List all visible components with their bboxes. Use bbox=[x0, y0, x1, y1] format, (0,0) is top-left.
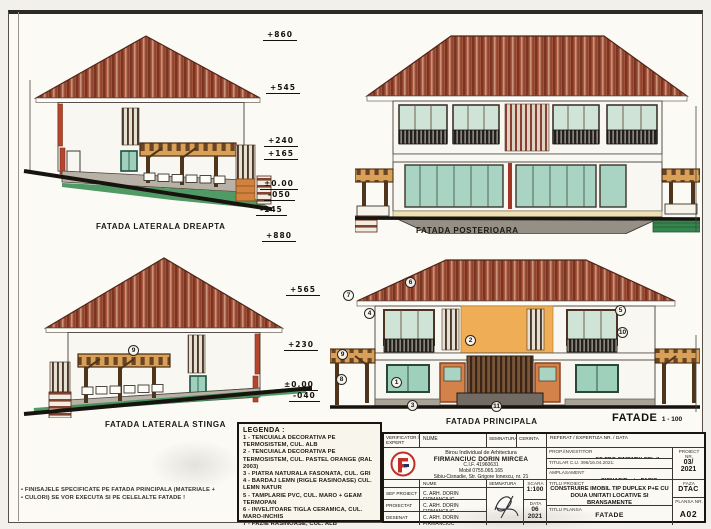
sheet-title-text: FATADE bbox=[612, 412, 657, 424]
margin-line bbox=[18, 12, 19, 521]
facade-posterioara-drawing bbox=[355, 22, 700, 234]
proiectat-name: C. ARH. DORIN FIRMANCIUC bbox=[420, 500, 487, 512]
legend-item: 5 - TAMPLARIE PVC, CUL. MARO + GEAM TERM… bbox=[243, 493, 376, 507]
legend-item: 6 - INVELITOARE TIGLA CERAMICA, CUL. MAR… bbox=[243, 507, 376, 521]
finish-note-line1: • FINISAJELE SPECIFICATE PE FATADA PRINC… bbox=[21, 486, 236, 494]
legend-item: 2 - TENCUIALA DECORATIVA PE TERMOSISTEM,… bbox=[243, 449, 376, 471]
architect-logo bbox=[390, 451, 416, 477]
callout-8: 8 bbox=[336, 374, 347, 385]
data-month: 06 bbox=[524, 506, 546, 513]
sheet-scale-text: 1 - 100 bbox=[662, 416, 682, 423]
sheet-title-fatade: FATADE 1 - 100 bbox=[612, 408, 682, 426]
cerinta-header: CERINTA bbox=[517, 434, 547, 448]
faza-value: DTAC bbox=[673, 486, 704, 493]
callout-9-stinga: 9 bbox=[128, 345, 139, 356]
plansa-nr-value: A02 bbox=[673, 509, 704, 519]
callout-4: 4 bbox=[364, 308, 375, 319]
titlu-plansa-value: FATADE bbox=[547, 512, 672, 519]
callout-9: 9 bbox=[337, 349, 348, 360]
verificator-label: VERIFICATOR / EXPERT bbox=[384, 434, 420, 448]
scara-value: 1:100 bbox=[524, 486, 546, 493]
firm-info: Birou Individual de Arhitectura FIRMANCI… bbox=[418, 450, 544, 480]
facade-laterala-stinga-drawing bbox=[22, 238, 312, 418]
elevation-mark: +565 bbox=[286, 285, 320, 296]
callout-10: 10 bbox=[617, 327, 628, 338]
data-year: 2021 bbox=[524, 513, 546, 520]
elevation-mark: +880 bbox=[262, 231, 296, 242]
desenat-name: C. ARH. DORIN FIRMANCIUC bbox=[420, 512, 487, 525]
referat-header: REFERAT / EXPERTIZA NR. / DATA bbox=[547, 434, 704, 448]
semnatura-subheader: SEMNATURA bbox=[487, 480, 524, 488]
titlu-proiect-value: CONSTRUIRE IMOBIL TIP DUPLEX P+E CU DOUA… bbox=[547, 486, 672, 506]
prop-label: PROP./INVESTITOR bbox=[547, 448, 593, 454]
plansa-nr-label: PLANSA NR. bbox=[673, 498, 704, 504]
drawing-sheet: FATADA LATERALA DREAPTA bbox=[0, 0, 711, 529]
legend-box: LEGENDA : 1 - TENCUIALA DECORATIVA PE TE… bbox=[237, 422, 382, 522]
semnatura-header: SEMNATURA bbox=[487, 434, 517, 448]
legend-title: LEGENDA : bbox=[243, 427, 376, 434]
facade-laterala-dreapta-drawing bbox=[22, 24, 272, 224]
nume-header: NUME bbox=[420, 434, 487, 448]
nume-subheader: NUME bbox=[420, 480, 487, 488]
elevation-mark: ±0.00 bbox=[280, 380, 318, 391]
finish-note-line2: • CULORI) SE VOR EXECUTA SI PE CELELALTE… bbox=[21, 494, 236, 502]
titular-label: TITULAR C.U. 396/16.04.2021: bbox=[547, 459, 615, 465]
callout-1: 1 bbox=[391, 377, 402, 388]
desenat-role: DESENAT bbox=[384, 512, 420, 525]
elevation-mark: +240 bbox=[264, 136, 298, 147]
sef-proiect-name: C. ARH. DORIN FIRMANCIUC bbox=[420, 488, 487, 500]
proiect-nr-value1: 03/ bbox=[673, 459, 704, 466]
sef-proiect-role: SEF PROIECT bbox=[384, 488, 420, 500]
label-fatada-laterala-stinga: FATADA LATERALA STINGA bbox=[105, 420, 226, 429]
legend-item: 7 - PAZIE RASINOASE, CUL. ALB bbox=[243, 521, 376, 528]
legend-item: 4 - BARDAJ LEMN (RIGLE RASINOASE) CUL. L… bbox=[243, 478, 376, 492]
callout-5: 5 bbox=[615, 305, 626, 316]
signature-scribble bbox=[489, 490, 522, 523]
callout-11: 11 bbox=[491, 401, 502, 412]
callout-3: 3 bbox=[407, 400, 418, 411]
title-block: VERIFICATOR / EXPERT NUME SEMNATURA CERI… bbox=[382, 432, 706, 523]
proiectat-role: PROIECTAT bbox=[384, 500, 420, 512]
callout-2: 2 bbox=[465, 335, 476, 346]
elevation-mark: ±0.00 bbox=[260, 179, 298, 190]
label-fatada-laterala-dreapta: FATADA LATERALA DREAPTA bbox=[96, 222, 226, 231]
elevation-mark: +545 bbox=[266, 83, 300, 94]
proiect-nr-value2: 2021 bbox=[673, 466, 704, 473]
elevation-mark: +230 bbox=[284, 340, 318, 351]
facade-principala-drawing bbox=[330, 252, 700, 417]
elevation-mark: +860 bbox=[263, 30, 297, 41]
legend-item: 1 - TENCUIALA DECORATIVA PE TERMOSISTEM,… bbox=[243, 435, 376, 449]
elevation-mark: -050 bbox=[264, 190, 295, 201]
legend-item: 3 - PIATRA NATURALA FASONATA, CUL. GRI bbox=[243, 471, 376, 478]
label-fatada-principala: FATADA PRINCIPALA bbox=[446, 417, 538, 426]
label-fatada-posterioara: FATADA POSTERIOARA bbox=[416, 226, 519, 235]
callout-6: 6 bbox=[405, 277, 416, 288]
elevation-mark: +165 bbox=[264, 149, 298, 160]
amplasament-label: AMPLASAMENT bbox=[547, 469, 585, 475]
elevation-mark: -040 bbox=[289, 391, 320, 402]
callout-7: 7 bbox=[343, 290, 354, 301]
elevation-mark: -145 bbox=[256, 205, 287, 216]
proiect-nr-label: PROIECT NR. bbox=[673, 448, 704, 459]
finish-note: • FINISAJELE SPECIFICATE PE FATADA PRINC… bbox=[21, 486, 236, 502]
